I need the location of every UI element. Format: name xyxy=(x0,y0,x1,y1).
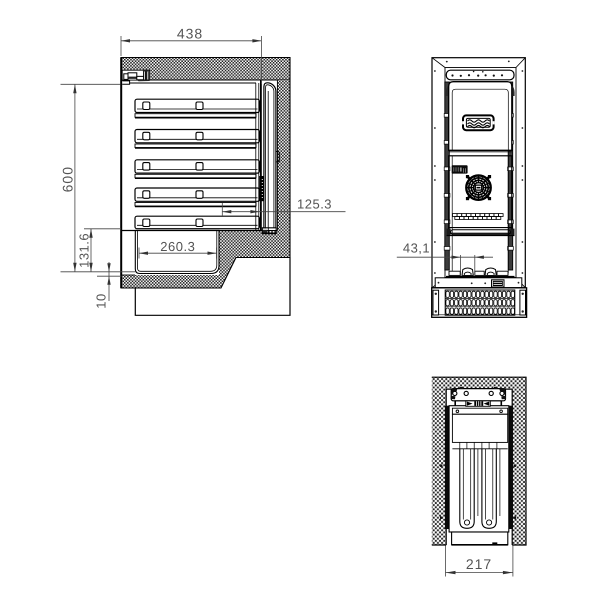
svg-text:125.3: 125.3 xyxy=(297,197,332,212)
svg-text:600: 600 xyxy=(60,166,76,192)
svg-text:217: 217 xyxy=(466,556,492,572)
svg-text:438: 438 xyxy=(177,26,203,42)
svg-text:131.6: 131.6 xyxy=(77,233,92,268)
svg-text:10: 10 xyxy=(94,293,109,308)
svg-text:43,1: 43,1 xyxy=(403,241,430,256)
svg-text:260.3: 260.3 xyxy=(160,239,195,254)
